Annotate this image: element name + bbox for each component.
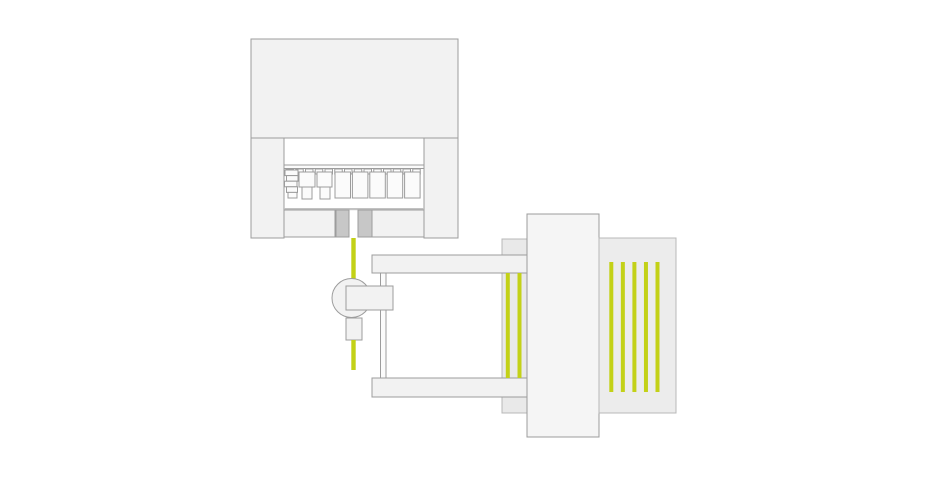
- press-head: [251, 39, 458, 138]
- feed-wire-line: [656, 262, 660, 392]
- die-rect: [370, 172, 386, 198]
- crimp-tool-1: [299, 172, 315, 199]
- tool-stack-slat: [287, 187, 298, 193]
- tool-stack-slat: [288, 192, 297, 198]
- coiler-top-beam: [372, 255, 527, 273]
- machine-illustration-canvas: [0, 0, 925, 478]
- press-base-left: [284, 210, 335, 237]
- wire-upper-segment: [351, 238, 355, 279]
- crimp-tool-head: [299, 172, 315, 187]
- buffer-wire-line: [506, 273, 510, 378]
- tool-stack: [285, 170, 299, 198]
- die-rects: [335, 172, 420, 198]
- press-base-right: [372, 210, 424, 237]
- roller-arm: [346, 286, 393, 310]
- crimp-tool-2: [317, 172, 332, 199]
- tool-stack-slat: [285, 170, 298, 176]
- roller-lower-guide: [346, 318, 362, 340]
- crimp-tool-shank: [302, 187, 312, 199]
- feed-wire-line: [632, 262, 636, 392]
- buffer-wire-line: [518, 273, 522, 378]
- die-rect: [405, 172, 421, 198]
- coiler-bottom-beam: [372, 378, 527, 397]
- wire-lower-segment: [351, 340, 355, 370]
- die-rect: [352, 172, 368, 198]
- tool-stack-slat: [287, 176, 299, 182]
- crimp-tool-shank: [320, 187, 330, 199]
- press-die-block-left: [336, 210, 349, 237]
- press-left-column: [251, 138, 284, 238]
- crimp-tool-head: [317, 172, 332, 187]
- coiler-column: [527, 214, 599, 437]
- press-die-block-right: [358, 210, 372, 237]
- die-rect: [387, 172, 403, 198]
- tool-stack-slat: [285, 181, 298, 187]
- die-rect: [335, 172, 351, 198]
- machine-diagram: [0, 0, 925, 478]
- stamping-press: [251, 39, 458, 238]
- press-right-column: [424, 138, 458, 238]
- feed-wire-line: [609, 262, 613, 392]
- feed-wire-line: [621, 262, 625, 392]
- coiler-machine: [372, 214, 676, 437]
- tool-rail: [284, 165, 424, 169]
- feed-wire-line: [644, 262, 648, 392]
